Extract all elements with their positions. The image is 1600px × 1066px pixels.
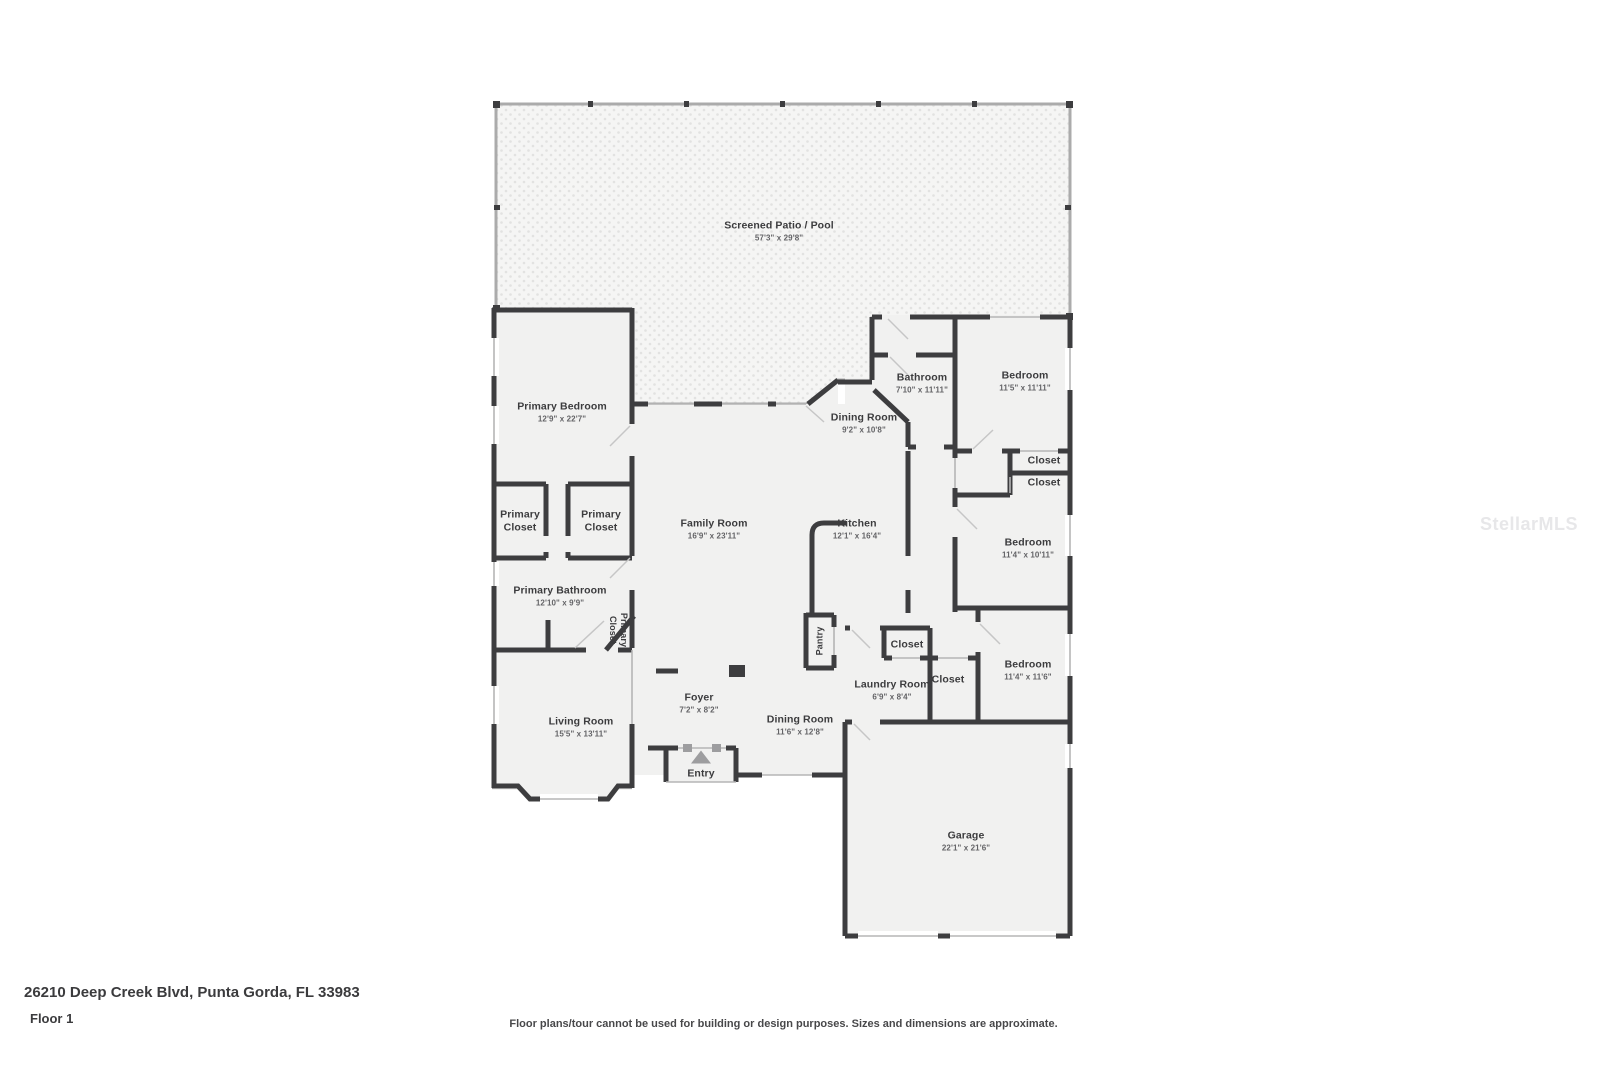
entry-arrow-icon — [691, 751, 711, 764]
floor-plan-drawing — [0, 0, 1600, 1066]
address-text: 26210 Deep Creek Blvd, Punta Gorda, FL 3… — [24, 984, 360, 1001]
stellar-mls-watermark: StellarMLS — [1480, 514, 1578, 535]
floor-plan-page: Screened Patio / Pool 57'3" x 29'8" Prim… — [0, 0, 1600, 1066]
foyer-door-marker — [729, 665, 745, 677]
disclaimer-text: Floor plans/tour cannot be used for buil… — [0, 1018, 1567, 1030]
